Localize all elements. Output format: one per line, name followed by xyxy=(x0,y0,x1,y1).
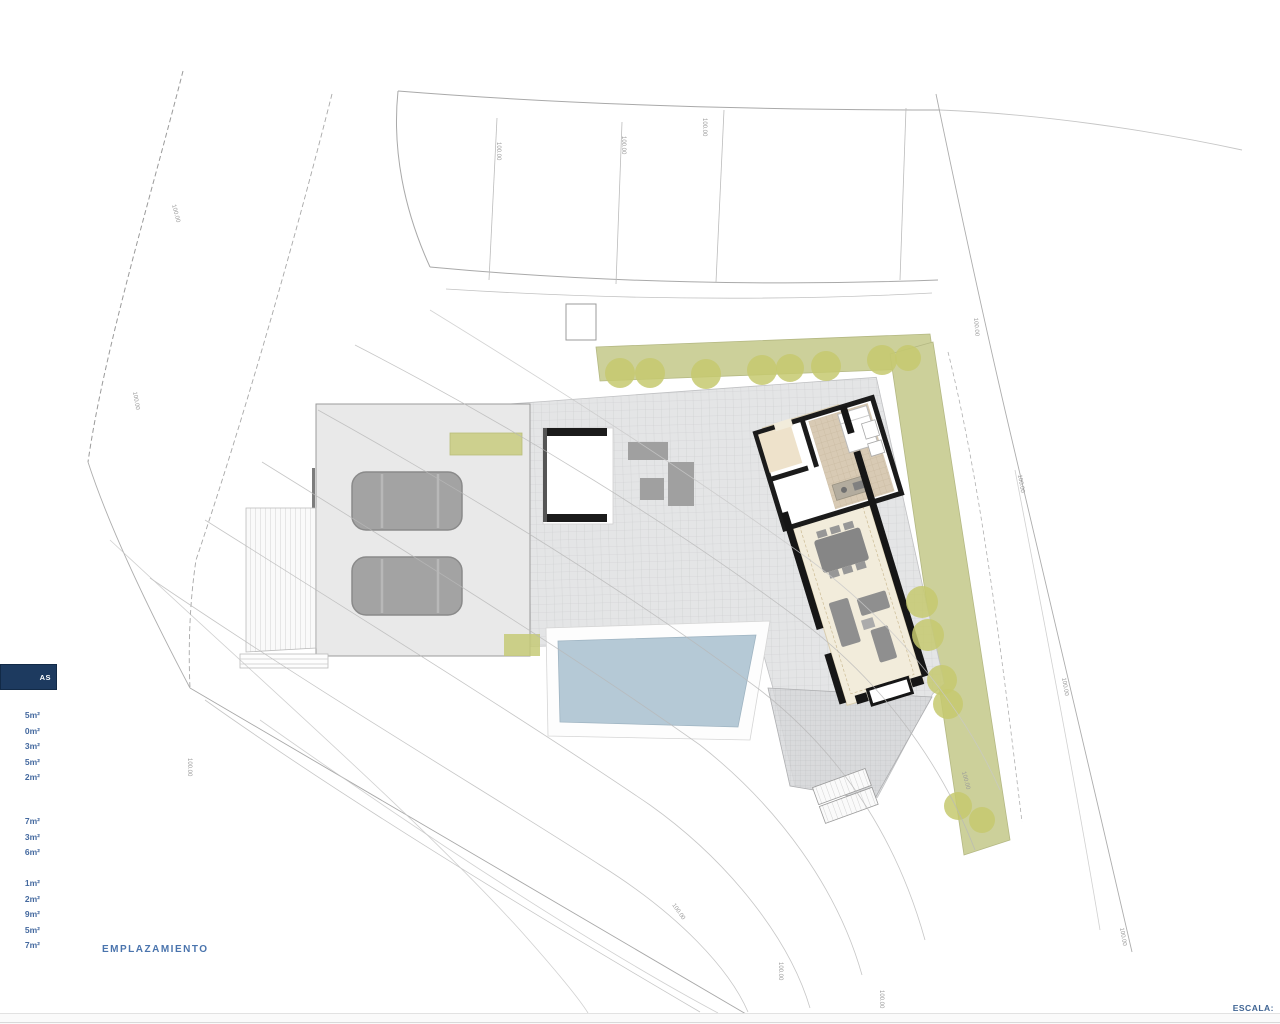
road-lines xyxy=(396,91,1242,298)
pool-water xyxy=(558,635,756,727)
title-block-edge xyxy=(0,1013,1280,1024)
area-row: 0m² xyxy=(0,724,40,740)
tree-icon xyxy=(944,792,972,820)
elevation-label: 100.00 xyxy=(1060,677,1069,697)
area-row: 2m² xyxy=(0,770,40,786)
elevation-label: 100.00 xyxy=(878,990,884,1009)
area-row: 6m² xyxy=(0,845,40,861)
elevation-label: 100.00 xyxy=(701,118,707,137)
tree-icon xyxy=(635,358,665,388)
tree-icon xyxy=(776,354,804,382)
site-plan-canvas: 100.00 100.00 100.00 100.00 100.00 100.0… xyxy=(0,0,1280,1024)
tree-icon xyxy=(895,345,921,371)
elevation-label: 100.00 xyxy=(186,758,192,777)
detached-room xyxy=(543,428,613,524)
area-row: 1m² xyxy=(0,876,40,892)
scale-label: ESCALA: xyxy=(1233,1003,1274,1013)
area-row: 2m² xyxy=(0,892,40,908)
area-group: 7m²3m²6m² xyxy=(0,814,40,861)
tree-icon xyxy=(906,586,938,618)
entrance-box xyxy=(566,304,596,340)
site-plan-drawing: 100.00 100.00 100.00 100.00 100.00 100.0… xyxy=(0,0,1280,1024)
planter-strip xyxy=(504,634,540,656)
tree-icon xyxy=(867,345,897,375)
elevation-label: 100.00 xyxy=(972,318,980,337)
elevation-label: 100.00 xyxy=(777,962,783,981)
area-group: 1m²2m²9m²5m²7m² xyxy=(0,876,40,954)
tree-icon xyxy=(912,619,944,651)
tree-icon xyxy=(747,355,777,385)
plan-title: EMPLAZAMIENTO xyxy=(102,944,209,955)
area-row: 7m² xyxy=(0,938,40,954)
tree-icon xyxy=(691,359,721,389)
legend-title: AS xyxy=(0,664,57,690)
area-row: 5m² xyxy=(0,923,40,939)
area-row: 5m² xyxy=(0,755,40,771)
tree-icon xyxy=(605,358,635,388)
area-row: 3m² xyxy=(0,830,40,846)
area-row: 5m² xyxy=(0,708,40,724)
elevation-label: 100.00 xyxy=(131,391,140,411)
area-row: 3m² xyxy=(0,739,40,755)
car-icon xyxy=(352,557,462,615)
elevation-label: 100.00 xyxy=(170,204,181,224)
tree-icon xyxy=(811,351,841,381)
area-row: 9m² xyxy=(0,907,40,923)
parking-area xyxy=(240,404,530,668)
elevation-label: 100.00 xyxy=(495,142,501,161)
driveway-ramp xyxy=(240,508,328,668)
area-group: 5m²0m²3m²5m²2m² xyxy=(0,708,40,786)
car-icon xyxy=(352,472,462,530)
planter-strip xyxy=(450,433,522,455)
elevation-label: 100.00 xyxy=(620,136,626,155)
elevation-label: 100.00 xyxy=(1118,927,1127,947)
area-row: 7m² xyxy=(0,814,40,830)
tree-icon xyxy=(969,807,995,833)
